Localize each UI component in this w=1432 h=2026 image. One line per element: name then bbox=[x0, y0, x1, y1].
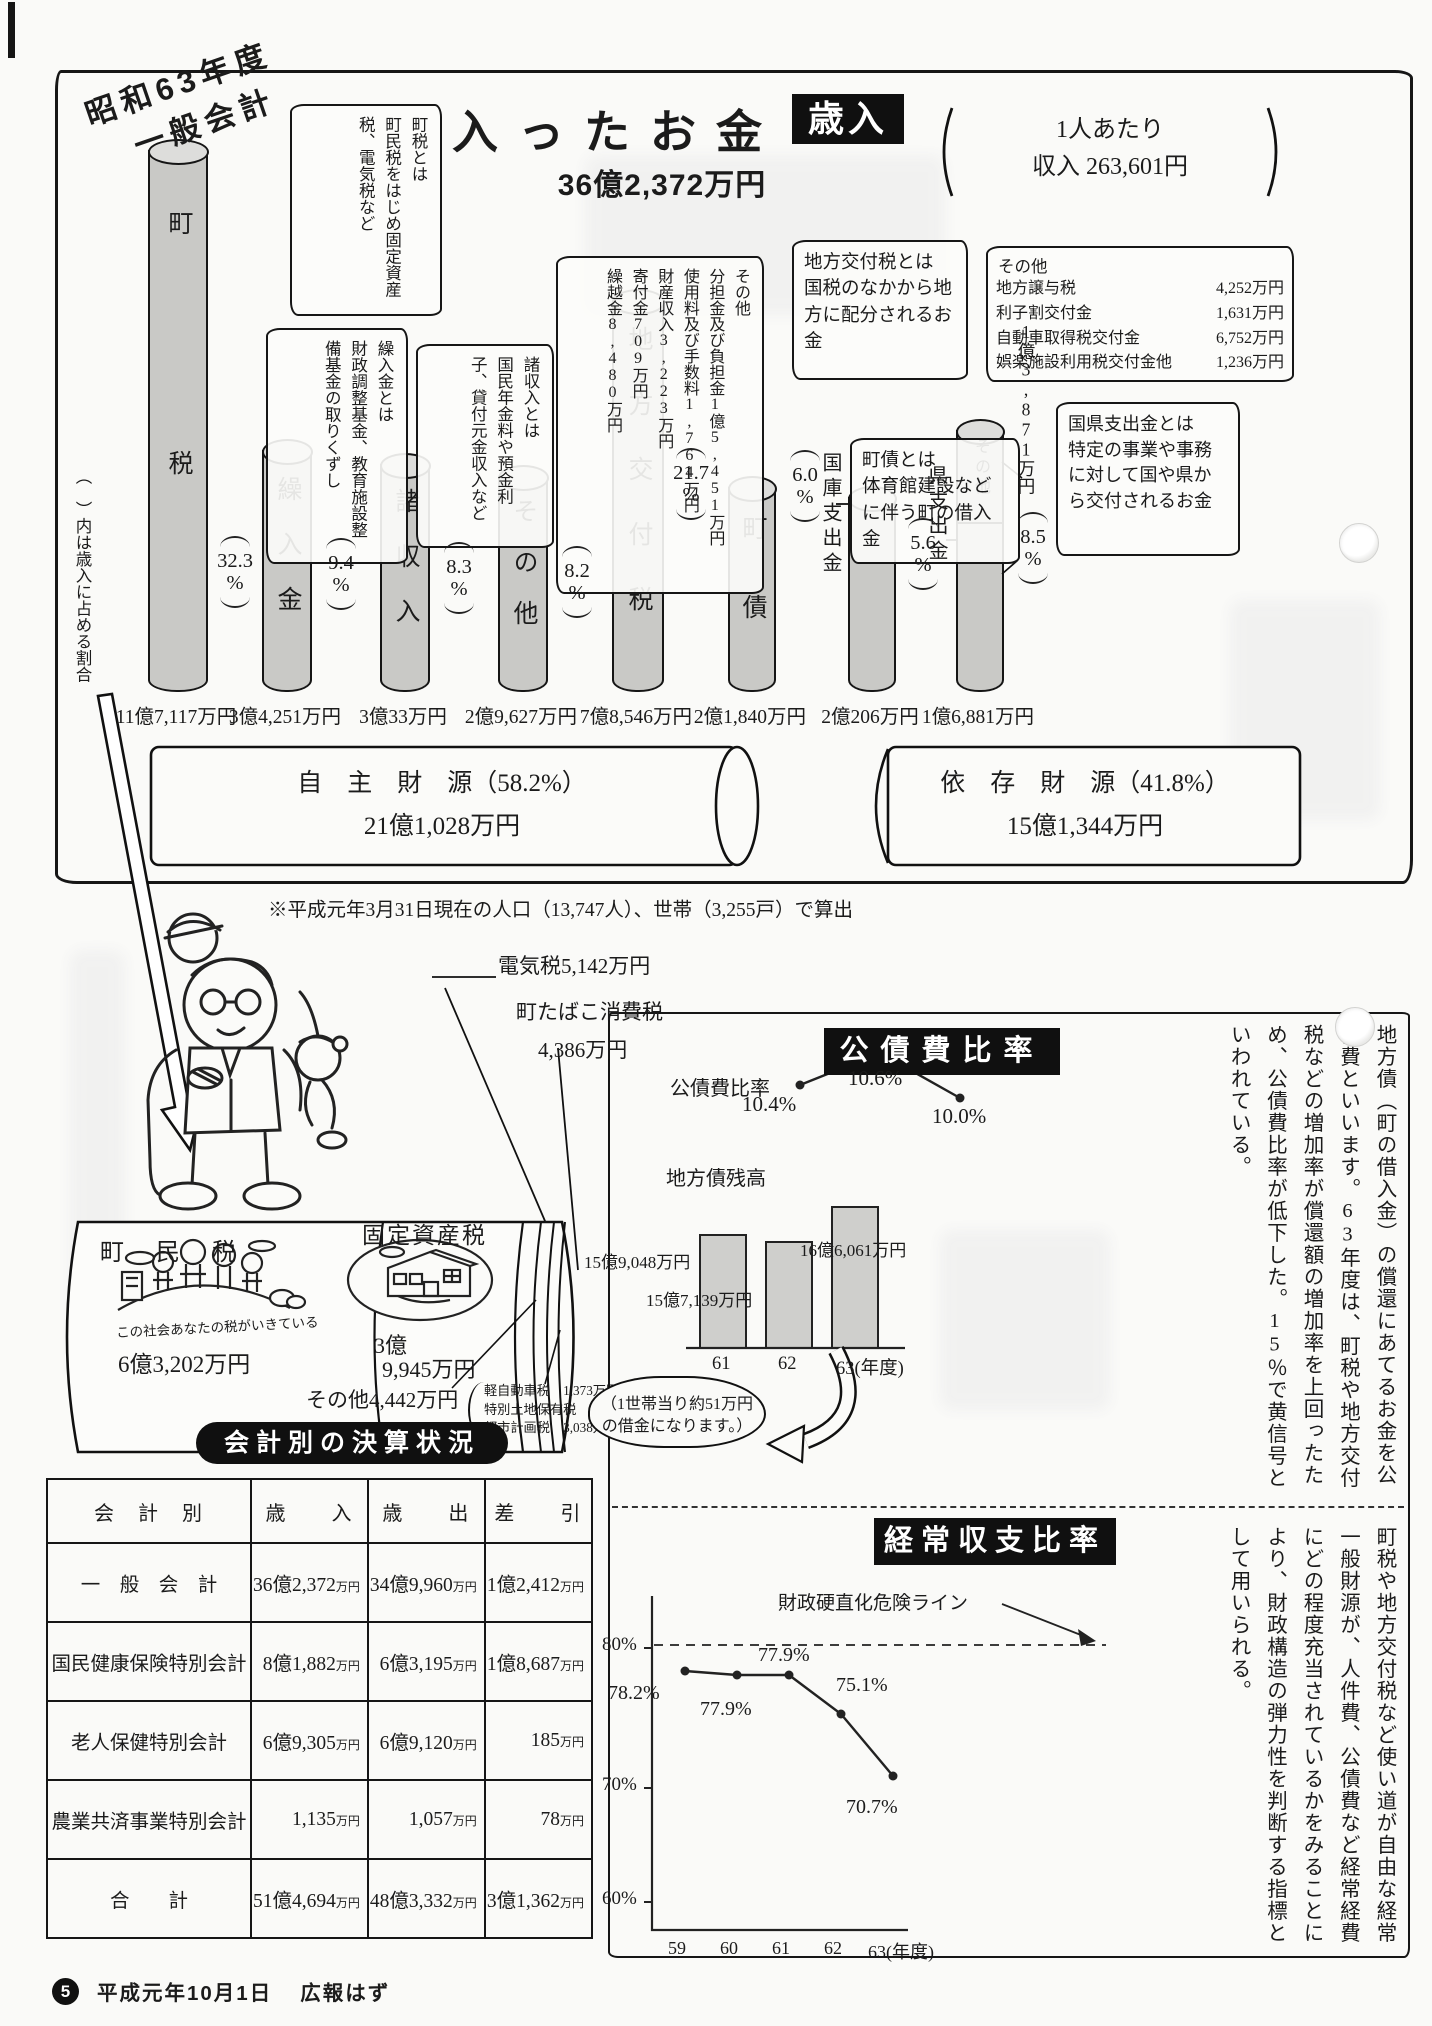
jishu-amount: 21億1,028万円 bbox=[272, 805, 612, 848]
table-row: 一 般 会 計 36億2,372万円 34億9,960万円 1億2,412万円 bbox=[47, 1543, 592, 1622]
tax-sonota-amount: その他4,442万円 bbox=[306, 1384, 458, 1414]
izon-amount: 15億1,344万円 bbox=[915, 805, 1255, 848]
item-value: 4,252万円 bbox=[1216, 277, 1284, 302]
newsletter-page: 昭和63年度 一般会計 入ったお金 歳入 36億2,372万円 1人あたり 収入… bbox=[0, 0, 1432, 2026]
keijo-header: 経常収支比率 bbox=[874, 1518, 1116, 1565]
bond-value: 16億6,061万円 bbox=[800, 1236, 906, 1261]
keijo-explanation: 町税や地方交付税など使い道が自由な経常一般財源が、人件費、公債費など経常経費にど… bbox=[1158, 1526, 1402, 1946]
note-title: 諸収入とは bbox=[517, 356, 543, 536]
bar-label: 町税 bbox=[160, 210, 196, 690]
bar-amount: 1億6,881万円 bbox=[893, 700, 1063, 729]
per-capita-note: 1人あたり 収入 263,601円 bbox=[962, 112, 1258, 186]
issue-date: 平成元年10月1日 bbox=[97, 1976, 272, 2006]
item-name: 利子割交付金 bbox=[996, 302, 1092, 327]
bleedthrough-ghost bbox=[70, 950, 125, 1380]
keijo-point-label: 75.1% bbox=[836, 1674, 888, 1697]
row-label: 一 般 会 計 bbox=[47, 1543, 251, 1622]
tabako-amount: 4,386万円 bbox=[538, 1034, 627, 1064]
bar-percent: 32.3% bbox=[208, 536, 262, 608]
bar-percent: 5.6% bbox=[896, 518, 950, 590]
bar-percent: 6.0% bbox=[778, 450, 832, 522]
x-tick: 62 bbox=[824, 1938, 842, 1959]
col-header: 会 計 別 bbox=[47, 1479, 251, 1543]
section-divider-dashed bbox=[612, 1506, 1404, 1508]
cell: 6億9,120万円 bbox=[368, 1701, 485, 1780]
tabako-label: 町たばこ消費税 bbox=[516, 996, 663, 1026]
x-tick: 63(年度) bbox=[868, 1938, 934, 1964]
table-header-row: 会 計 別 歳 入 歳 出 差 引 bbox=[47, 1479, 592, 1543]
note-body: 国税のなかから地方に配分されるお金 bbox=[804, 279, 952, 352]
y-tick: 60% bbox=[602, 1888, 637, 1910]
kosaihi-point-label: 10.4% bbox=[742, 1092, 796, 1117]
cell: 48億3,332万円 bbox=[368, 1859, 485, 1938]
note-body: 財政調整基金、教育施設整備基金の取りくずし bbox=[322, 340, 367, 538]
accounts-table: 会 計 別 歳 入 歳 出 差 引 一 般 会 計 36億2,372万円 34億… bbox=[46, 1478, 593, 1939]
note-title: その他 bbox=[988, 248, 1292, 277]
note-row: 地方譲与税4,252万円 bbox=[988, 277, 1292, 302]
note-title: その他 bbox=[727, 268, 753, 582]
note-sonota-breakdown: その他 分担金及び負担金1億5,451万円 使用料及び手数料1,764万円 財産… bbox=[556, 256, 764, 594]
col-header: 歳 出 bbox=[368, 1479, 485, 1543]
oval-line2: の借金になります。） bbox=[590, 1416, 764, 1438]
note-body: 町民税をはじめ固定資産税、電気税など bbox=[356, 116, 401, 298]
table-row: 農業共済事業特別会計 1,135万円 1,057万円 78万円 bbox=[47, 1780, 592, 1859]
cell: 1億2,412万円 bbox=[485, 1543, 592, 1622]
kosaihi-point-label: 10.6% bbox=[848, 1066, 902, 1091]
bond-year: 63(年度) bbox=[836, 1354, 904, 1380]
cell: 6億3,195万円 bbox=[368, 1622, 485, 1701]
cell: 8億1,882万円 bbox=[251, 1622, 368, 1701]
izon-label: 依 存 財 源（41.8%） bbox=[915, 762, 1255, 805]
page-title: 入ったお金 bbox=[452, 96, 782, 162]
table-row: 合 計 51億4,694万円 48億3,332万円 3億1,362万円 bbox=[47, 1859, 592, 1938]
note-kokken: 国県支出金とは特定の事業や事務に対して国や県から交付されるお金 bbox=[1056, 402, 1240, 556]
jishu-zaigen: 自 主 財 源（58.2%） 21億1,028万円 bbox=[272, 762, 612, 848]
total-revenue: 36億2,372万円 bbox=[492, 160, 832, 204]
axis-note: （ ）内は歳入に占める割合 bbox=[70, 468, 94, 720]
leader-line bbox=[545, 1330, 560, 1384]
col-header: 差 引 bbox=[485, 1479, 592, 1543]
page-footer: 5 平成元年10月1日 広報はず bbox=[52, 1976, 390, 2006]
note-shoshunyu: 諸収入とは国民年金料や預金利子、貸付元金収入など bbox=[416, 344, 554, 548]
oval-line1: （1世帯当り約51万円 bbox=[590, 1394, 764, 1416]
cell: 34億9,960万円 bbox=[368, 1543, 485, 1622]
kotei-label: 固定資産税 bbox=[362, 1216, 487, 1250]
note-chozei: 町税とは町民税をはじめ固定資産税、電気税など bbox=[290, 104, 442, 316]
bar-top-segment-amount: 1億3,871万円 bbox=[1014, 322, 1039, 497]
bar-percent: 8.2% bbox=[550, 546, 604, 618]
table-row: 老人保健特別会計 6億9,305万円 6億9,120万円 185万円 bbox=[47, 1701, 592, 1780]
note-body: 特定の事業や事務に対して国や県から交付されるお金 bbox=[1068, 440, 1212, 511]
cell: 3億1,362万円 bbox=[485, 1859, 592, 1938]
jishu-label: 自 主 財 源（58.2%） bbox=[272, 762, 612, 805]
per-capita-line1: 1人あたり bbox=[962, 112, 1258, 149]
bar-percent: 9.4% bbox=[314, 538, 368, 610]
cell: 36億2,372万円 bbox=[251, 1543, 368, 1622]
house-illustration bbox=[348, 1240, 492, 1320]
cell: 1,135万円 bbox=[251, 1780, 368, 1859]
note-kuriire: 繰入金とは財政調整基金、教育施設整備基金の取りくずし bbox=[266, 328, 408, 564]
note-title: 国県支出金とは bbox=[1068, 412, 1228, 438]
per-capita-line2: 収入 263,601円 bbox=[962, 149, 1258, 186]
x-tick: 59 bbox=[668, 1938, 686, 1959]
kosaihi-explanation: 地方債（町の借入金）の償還にあてるお金を公債費といいます。63年度は、町税や地方… bbox=[1158, 1024, 1402, 1492]
debt-per-household-note: （1世帯当り約51万円 の借金になります。） bbox=[588, 1376, 766, 1448]
note-item: 使用料及び手数料1,764万円 bbox=[676, 268, 702, 582]
keijo-point-label: 77.9% bbox=[758, 1644, 810, 1667]
leader-line bbox=[558, 1048, 578, 1270]
cell: 51億4,694万円 bbox=[251, 1859, 368, 1938]
danger-line-label: 財政硬直化危険ライン bbox=[778, 1588, 968, 1615]
page-number: 5 bbox=[52, 1978, 79, 2005]
item-name: 地方譲与税 bbox=[996, 277, 1076, 302]
note-body: 国民年金料や預金利子、貸付元金収入など bbox=[468, 356, 513, 521]
izon-zaigen: 依 存 財 源（41.8%） 15億1,344万円 bbox=[915, 762, 1255, 848]
tax-slogan: この社会あなたの税がいきている bbox=[116, 1311, 319, 1342]
chominzei-label: 町 民 税 bbox=[100, 1232, 240, 1267]
publication-name: 広報はず bbox=[300, 1976, 390, 2006]
bar-percent: 8.5% bbox=[1006, 512, 1060, 584]
bond-value: 15億9,048万円 bbox=[584, 1248, 690, 1273]
bond-balance-label: 地方債残高 bbox=[666, 1162, 766, 1191]
kotei-amount-2: 9,945万円 bbox=[382, 1352, 476, 1384]
bar-percent: 21.7% bbox=[664, 448, 718, 520]
keijo-point-label: 77.9% bbox=[700, 1698, 752, 1721]
cell: 185万円 bbox=[485, 1701, 592, 1780]
row-label: 老人保健特別会計 bbox=[47, 1701, 251, 1780]
item-value: 1,631万円 bbox=[1216, 302, 1284, 327]
population-footnote: ※平成元年3月31日現在の人口（13,747人）、世帯（3,255戸）で算出 bbox=[268, 893, 853, 922]
item-value: 6,752万円 bbox=[1216, 327, 1284, 352]
father-children-illustration bbox=[148, 914, 347, 1209]
y-tick: 80% bbox=[602, 1634, 637, 1656]
scan-corner-mark bbox=[8, 2, 15, 58]
note-item: 寄付金709万円 bbox=[625, 268, 651, 582]
note-title: 繰入金とは bbox=[371, 340, 397, 552]
table-row: 国民健康保険特別会計 8億1,882万円 6億3,195万円 1億8,687万円 bbox=[47, 1622, 592, 1701]
item-value: 1,236万円 bbox=[1216, 351, 1284, 376]
col-header: 歳 入 bbox=[251, 1479, 368, 1543]
revenue-badge: 歳入 bbox=[792, 94, 904, 144]
row-label: 合 計 bbox=[47, 1859, 251, 1938]
cell: 78万円 bbox=[485, 1780, 592, 1859]
cell: 1億8,687万円 bbox=[485, 1622, 592, 1701]
y-tick: 70% bbox=[602, 1774, 637, 1796]
note-title: 町税とは bbox=[405, 116, 431, 304]
note-item: 繰越金8,480万円 bbox=[599, 268, 625, 582]
note-item: 財産収入3,223万円 bbox=[651, 268, 677, 582]
note-item: 分担金及び負担金1億5,451万円 bbox=[702, 268, 728, 582]
punch-hole bbox=[1339, 523, 1379, 563]
table-title: 会計別の決算状況 bbox=[196, 1422, 508, 1464]
x-tick: 60 bbox=[720, 1938, 738, 1959]
bar-percent: 8.3% bbox=[432, 542, 486, 614]
keijo-point-label: 70.7% bbox=[846, 1796, 898, 1819]
keijo-point-label: 78.2% bbox=[608, 1682, 660, 1705]
cell: 1,057万円 bbox=[368, 1780, 485, 1859]
revenue-bar-chozei: 町税 bbox=[148, 150, 208, 692]
bond-year: 61 bbox=[712, 1354, 731, 1375]
x-tick: 61 bbox=[772, 1938, 790, 1959]
denkizei-label: 電気税5,142万円 bbox=[498, 950, 650, 980]
punch-hole bbox=[1335, 1007, 1375, 1047]
row-label: 国民健康保険特別会計 bbox=[47, 1622, 251, 1701]
cell: 6億9,305万円 bbox=[251, 1701, 368, 1780]
row-label: 農業共済事業特別会計 bbox=[47, 1780, 251, 1859]
bond-year: 62 bbox=[778, 1354, 797, 1375]
note-kofuzei: 地方交付税とは国税のなかから地方に配分されるお金 bbox=[792, 240, 968, 380]
bond-value: 15億7,139万円 bbox=[646, 1286, 752, 1311]
kosaihi-point-label: 10.0% bbox=[932, 1104, 986, 1129]
chominzei-amount: 6億3,202万円 bbox=[118, 1345, 250, 1379]
note-title: 地方交付税とは bbox=[804, 250, 956, 276]
